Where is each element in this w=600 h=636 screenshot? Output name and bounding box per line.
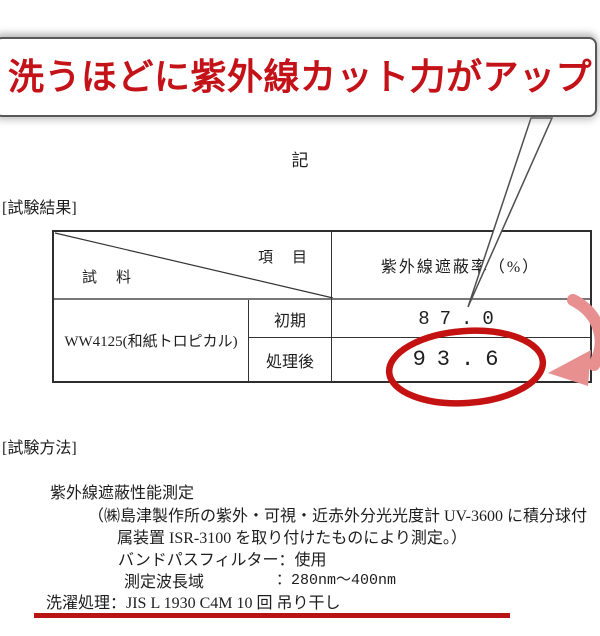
results-section-label: [試験結果] [2,194,77,218]
method-line-attachment: 属装置 ISR-3100 を取り付けたものにより測定。） [117,524,467,548]
method-section-label: [試験方法] [2,434,77,458]
memo-mark: 記 [0,146,600,171]
method-line-filter: バンドパスフィルター：使用 [118,546,326,570]
header-sample-label: 試 料 [82,266,133,287]
results-table: 項 目 試 料 紫外線遮蔽率（%） WW4125(和紙トロピカル) 初期 処理後… [52,230,592,383]
header-item-label: 項 目 [258,246,309,267]
row-after-value: 93.6 [332,338,590,381]
row-initial-value: 87.0 [332,300,590,337]
wavelength-value: ：280nm～400nm [276,568,396,589]
row-initial-label: 初期 [249,300,331,337]
washing-process-line: 洗濯処理：JIS L 1930 C4M 10 回 吊り干し [46,589,341,613]
table-header-row: 項 目 試 料 紫外線遮蔽率（%） [54,232,590,300]
headline-callout-bubble: 洗うほどに紫外線カット力がアップ [0,37,597,117]
sample-name-cell: WW4125(和紙トロピカル) [54,300,248,381]
method-title: 紫外線遮蔽性能測定 [50,479,194,503]
method-line-instrument: （㈱島津製作所の紫外・可視・近赤外分光光度計 UV-3600 に積分球付 [88,502,587,526]
red-underline [34,613,510,618]
document-page: 項 目 試 料 紫外線遮蔽率（%） WW4125(和紙トロピカル) 初期 処理後… [0,0,600,636]
row-after-label: 処理後 [249,338,331,381]
headline-text: 洗うほどに紫外線カット力がアップ [8,39,592,115]
header-value-column: 紫外線遮蔽率（%） [331,232,590,298]
